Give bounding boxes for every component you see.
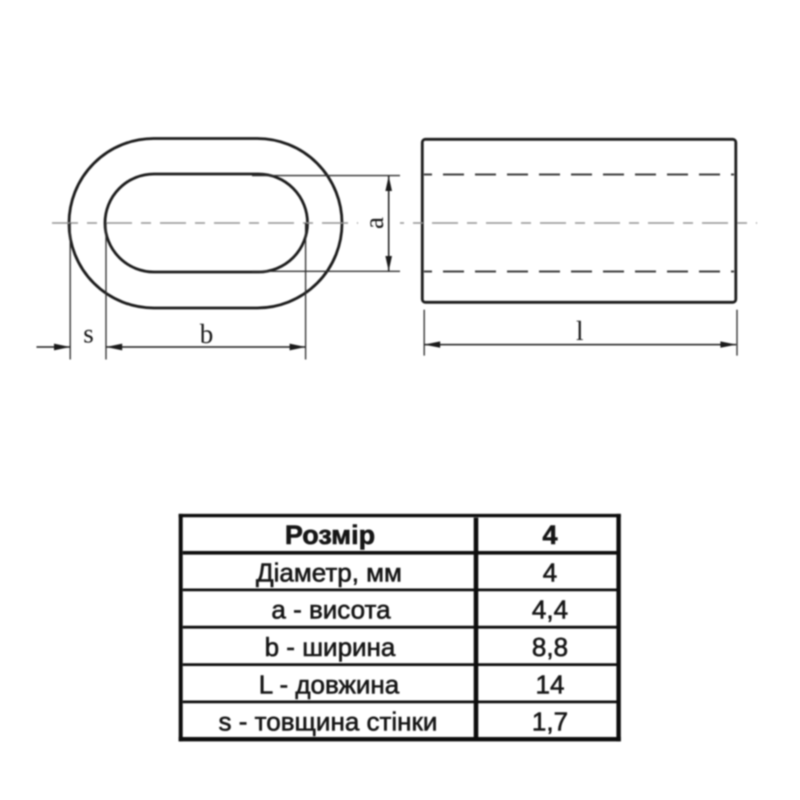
svg-text:4: 4 xyxy=(542,520,557,550)
svg-text:Діаметр, мм: Діаметр, мм xyxy=(256,558,402,588)
svg-text:s - товщина стінки: s - товщина стінки xyxy=(219,707,438,737)
svg-text:Розмір: Розмір xyxy=(285,520,375,550)
svg-text:8,8: 8,8 xyxy=(532,632,568,662)
svg-text:а - висота: а - висота xyxy=(271,595,391,625)
svg-text:b: b xyxy=(200,319,214,349)
svg-text:4: 4 xyxy=(543,558,557,588)
svg-text:4,4: 4,4 xyxy=(532,595,568,625)
svg-text:1,7: 1,7 xyxy=(532,707,568,737)
svg-text:b - ширина: b - ширина xyxy=(265,632,396,662)
svg-text:a: a xyxy=(359,217,389,229)
svg-text:s: s xyxy=(83,319,94,349)
svg-text:L - довжина: L - довжина xyxy=(259,669,400,699)
svg-text:14: 14 xyxy=(536,669,565,699)
svg-text:l: l xyxy=(576,316,584,346)
